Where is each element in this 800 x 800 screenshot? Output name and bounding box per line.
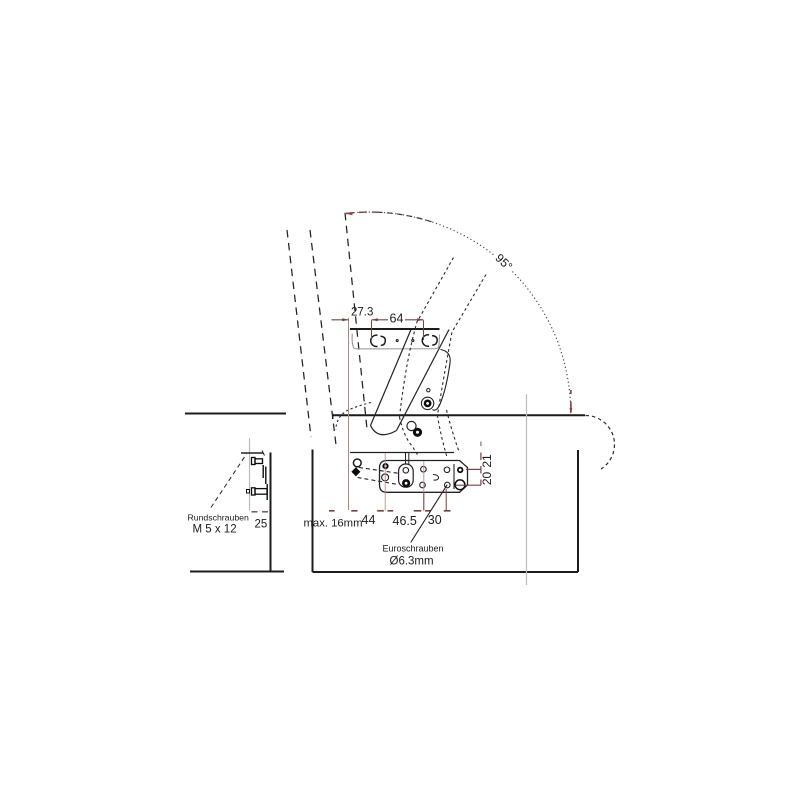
svg-text:M 5 x 12: M 5 x 12 bbox=[193, 524, 237, 536]
svg-text:64: 64 bbox=[390, 312, 404, 326]
svg-text:21: 21 bbox=[480, 454, 494, 468]
svg-text:Ø6.3mm: Ø6.3mm bbox=[390, 556, 434, 568]
svg-text:46.5: 46.5 bbox=[393, 514, 417, 528]
svg-text:Euroschrauben: Euroschrauben bbox=[383, 544, 444, 554]
svg-text:Rundschrauben: Rundschrauben bbox=[188, 513, 250, 523]
svg-text:25: 25 bbox=[255, 519, 268, 531]
svg-text:27.3: 27.3 bbox=[351, 307, 373, 319]
svg-text:30: 30 bbox=[428, 513, 442, 527]
svg-text:20: 20 bbox=[480, 472, 494, 486]
svg-text:44: 44 bbox=[362, 513, 376, 527]
svg-text:max. 16mm: max. 16mm bbox=[304, 518, 363, 530]
